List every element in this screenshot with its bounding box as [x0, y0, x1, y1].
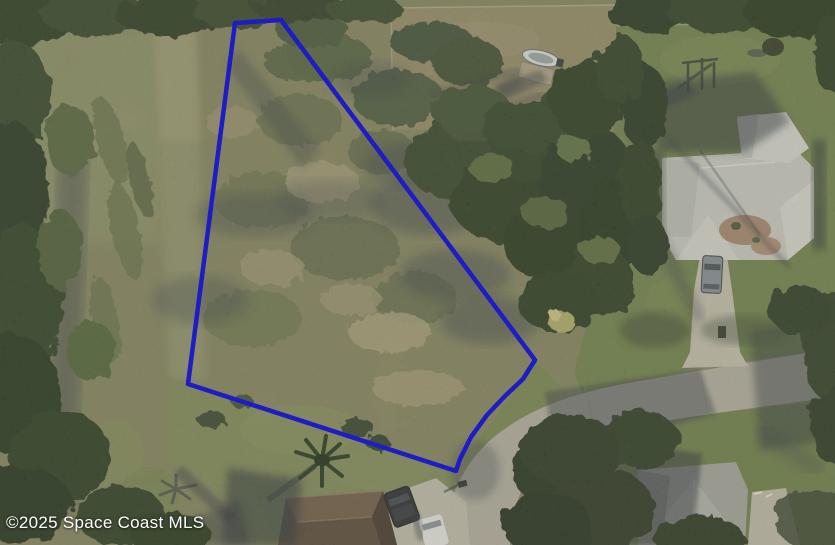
aerial-photo: ©2025 Space Coast MLS — [0, 0, 835, 545]
watermark: ©2025 Space Coast MLS — [6, 513, 204, 533]
aerial-photo-svg — [0, 0, 835, 545]
photo-grain-light — [0, 0, 835, 545]
